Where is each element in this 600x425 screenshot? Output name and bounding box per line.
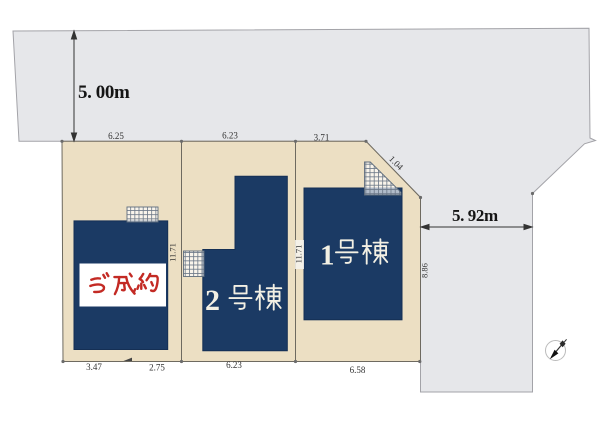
svg-text:11.71: 11.71 [167,243,177,262]
svg-text:6.58: 6.58 [350,365,366,375]
svg-text:8.86: 8.86 [419,263,429,278]
svg-text:5. 92m: 5. 92m [452,206,498,225]
svg-text:1: 1 [320,240,335,272]
svg-text:2: 2 [205,284,220,317]
svg-text:6.23: 6.23 [222,131,238,141]
svg-text:5. 00m: 5. 00m [78,82,130,103]
svg-text:6.25: 6.25 [108,131,124,141]
svg-text:3.71: 3.71 [314,133,330,143]
svg-text:11.71: 11.71 [293,245,303,264]
svg-text:2.75: 2.75 [149,363,165,373]
svg-text:6.23: 6.23 [226,360,242,370]
svg-text:3.47: 3.47 [86,362,102,372]
